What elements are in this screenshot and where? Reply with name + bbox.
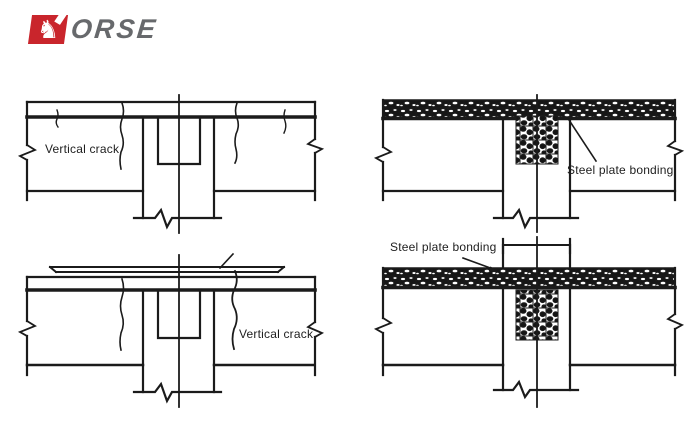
label-steel-plate-bonding-top: Steel plate bonding [567, 163, 674, 177]
leader-line [220, 254, 233, 268]
break-symbol [376, 318, 391, 333]
structural-drawing [0, 0, 700, 438]
break-symbol [668, 141, 682, 155]
crack-line [232, 271, 237, 349]
figure: ♞ ORSE [0, 0, 700, 438]
leader-line [569, 120, 596, 161]
label-steel-plate-bonding-bottom: Steel plate bonding [390, 240, 497, 254]
diagram-top-left [20, 95, 322, 233]
break-symbol [668, 314, 682, 329]
label-vertical-crack-top: Vertical crack [45, 142, 119, 156]
crack-line [120, 103, 124, 169]
top-plate [50, 267, 284, 272]
bonded-plate-band [383, 268, 675, 288]
diagram-bottom-right [376, 237, 682, 407]
label-vertical-crack-bottom: Vertical crack [239, 327, 313, 341]
crack-line [284, 110, 286, 133]
bonded-plate-band [383, 100, 675, 118]
break-symbol [20, 145, 35, 160]
column-bottom-cut [134, 210, 221, 227]
column-bottom-cut [494, 382, 578, 397]
column-bottom-cut [134, 384, 221, 401]
crack-line [235, 103, 238, 163]
column-bottom-cut [494, 210, 578, 227]
break-symbol [376, 147, 391, 162]
crack-line [56, 110, 58, 127]
break-symbol [20, 321, 35, 336]
break-symbol [308, 139, 322, 153]
